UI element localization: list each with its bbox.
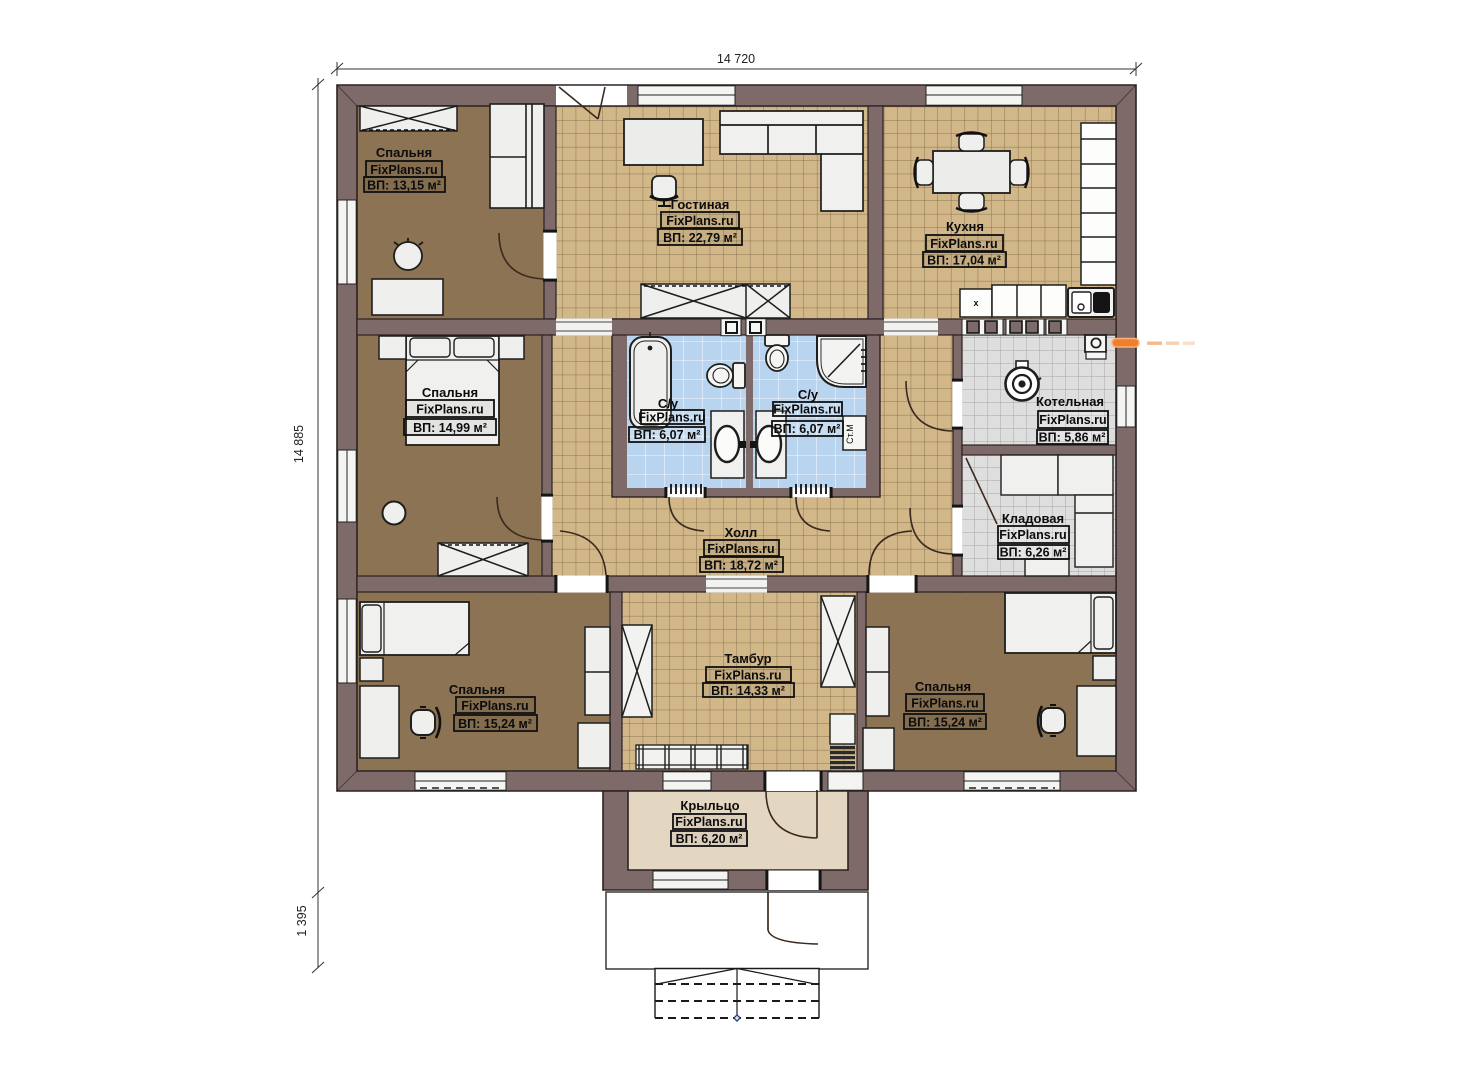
svg-text:FixPlans.ru: FixPlans.ru [930,237,997,251]
svg-text:ВП: 6,20 м²: ВП: 6,20 м² [676,832,743,846]
svg-text:FixPlans.ru: FixPlans.ru [638,411,705,425]
svg-text:Кладовая: Кладовая [1002,511,1064,526]
svg-text:Холл: Холл [725,525,758,540]
svg-text:Котельная: Котельная [1036,394,1104,409]
svg-text:ВП: 14,33 м²: ВП: 14,33 м² [711,684,785,698]
svg-text:ВП: 6,07 м²: ВП: 6,07 м² [634,428,701,442]
svg-text:FixPlans.ru: FixPlans.ru [999,528,1066,542]
svg-text:1 395: 1 395 [295,905,309,936]
svg-text:FixPlans.ru: FixPlans.ru [714,669,781,683]
svg-text:ВП: 15,24 м²: ВП: 15,24 м² [908,716,982,730]
svg-text:Ст.М: Ст.М [845,424,855,444]
svg-text:Спальня: Спальня [915,679,971,694]
svg-text:Кухня: Кухня [946,219,984,234]
svg-text:Тамбур: Тамбур [724,651,771,666]
svg-text:14 720: 14 720 [717,52,755,66]
svg-text:Спальня: Спальня [449,682,505,697]
svg-text:14 885: 14 885 [292,425,306,463]
svg-text:Крыльцо: Крыльцо [680,798,739,813]
svg-text:FixPlans.ru: FixPlans.ru [675,815,742,829]
svg-text:Спальня: Спальня [422,385,478,400]
svg-text:Гостиная: Гостиная [671,197,730,212]
svg-text:ВП: 17,04 м²: ВП: 17,04 м² [927,254,1001,268]
svg-text:FixPlans.ru: FixPlans.ru [416,403,483,417]
svg-text:Спальня: Спальня [376,145,432,160]
svg-text:С/у: С/у [798,387,819,402]
svg-text:FixPlans.ru: FixPlans.ru [666,214,733,228]
svg-text:FixPlans.ru: FixPlans.ru [1039,413,1106,427]
svg-text:FixPlans.ru: FixPlans.ru [461,699,528,713]
svg-text:FixPlans.ru: FixPlans.ru [773,403,840,417]
svg-text:FixPlans.ru: FixPlans.ru [370,163,437,177]
svg-text:FixPlans.ru: FixPlans.ru [707,542,774,556]
svg-text:ВП: 6,07 м²: ВП: 6,07 м² [774,422,841,436]
svg-text:FixPlans.ru: FixPlans.ru [911,697,978,711]
svg-text:x: x [973,298,978,308]
svg-text:ВП: 5,86 м²: ВП: 5,86 м² [1039,431,1106,445]
svg-text:ВП: 14,99 м²: ВП: 14,99 м² [413,421,487,435]
svg-text:С/у: С/у [658,396,679,411]
svg-text:ВП: 13,15 м²: ВП: 13,15 м² [367,179,441,193]
svg-text:ВП: 22,79 м²: ВП: 22,79 м² [663,231,737,245]
svg-text:ВП: 6,26 м²: ВП: 6,26 м² [1000,546,1067,560]
svg-text:ВП: 15,24 м²: ВП: 15,24 м² [458,717,532,731]
svg-text:ВП: 18,72 м²: ВП: 18,72 м² [704,559,778,573]
